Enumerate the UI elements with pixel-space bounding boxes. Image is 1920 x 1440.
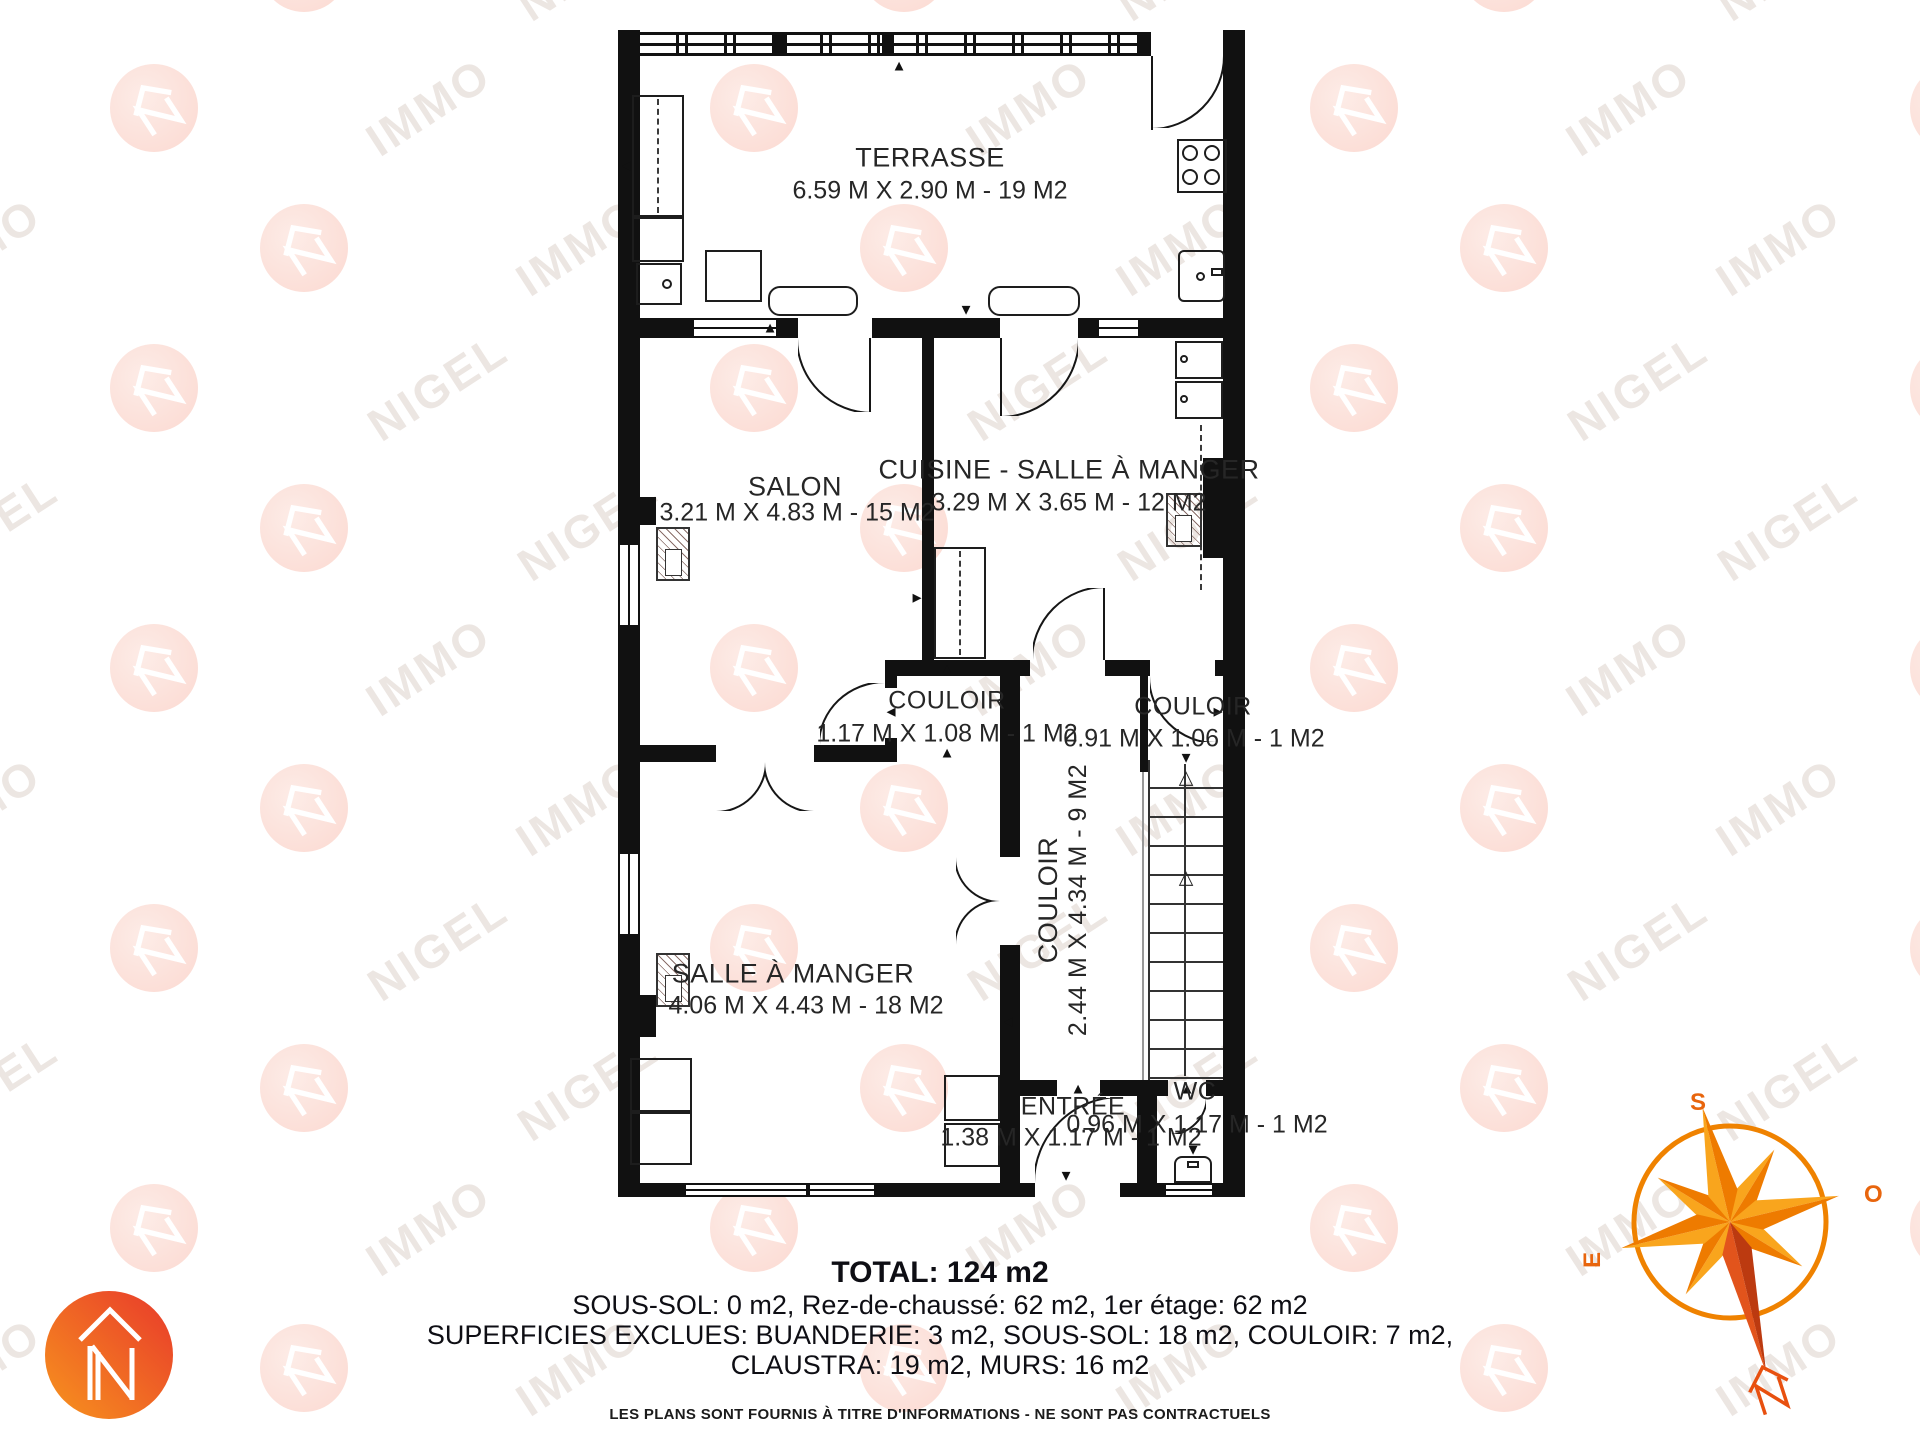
- cabinet-knob: [1180, 395, 1188, 403]
- door-leaf: [1103, 588, 1105, 660]
- wall: [1000, 945, 1020, 1195]
- wardrobe: [630, 1112, 692, 1165]
- opening-marker: ▼: [959, 303, 974, 318]
- compass-south-label: S: [1690, 1089, 1706, 1116]
- wall: [1223, 30, 1245, 1197]
- wall: [1120, 1183, 1164, 1197]
- wall: [1105, 660, 1150, 676]
- room-dims-cuisine: 3.29 M X 3.65 M - 12 M2: [931, 489, 1206, 518]
- double-door-arc: [765, 762, 814, 811]
- door-leaf: [1000, 338, 1002, 416]
- window: [618, 852, 640, 936]
- disclaimer: LES PLANS SONT FOURNIS À TITRE D'INFORMA…: [420, 1406, 1460, 1423]
- wall: [1078, 318, 1097, 338]
- door-arc: [798, 338, 872, 412]
- burner: [1182, 169, 1198, 185]
- wall: [1214, 1183, 1245, 1197]
- burner: [1204, 145, 1220, 161]
- room-label-salle-a-manger: SALLE À MANGER: [672, 959, 915, 990]
- wall-pier: [640, 995, 656, 1037]
- radiator-inner: [1175, 515, 1192, 542]
- window: [808, 1183, 876, 1197]
- compass-east-label: E: [1580, 1252, 1606, 1268]
- door-leaf: [1151, 56, 1153, 130]
- nigel-immo-logo-icon: [36, 1282, 186, 1432]
- door-arc: [1033, 588, 1105, 660]
- burner: [1182, 145, 1198, 161]
- wall: [1137, 32, 1151, 56]
- wall: [618, 1183, 684, 1197]
- radiator: [656, 527, 690, 581]
- bench: [768, 286, 858, 316]
- double-door-arc: [956, 901, 1000, 945]
- room-label-couloir-2: COULOIR: [1134, 693, 1251, 722]
- closet-dash-line: [959, 551, 961, 655]
- wall: [876, 1183, 1035, 1197]
- window: [1164, 1183, 1214, 1197]
- room-dims-salon: 3.21 M X 4.83 M - 15 M2: [659, 499, 934, 528]
- double-door-arc: [956, 857, 1000, 901]
- cabinet-knob: [1180, 355, 1188, 363]
- door-arc: [1151, 56, 1223, 128]
- door-arc: [1000, 338, 1078, 416]
- burner: [1204, 169, 1220, 185]
- area-summary: TOTAL: 124 m2 SOUS-SOL: 0 m2, Rez-de-cha…: [420, 1256, 1460, 1423]
- wall: [618, 318, 692, 338]
- opening-marker: ▲: [892, 59, 907, 74]
- floors-area-line: SOUS-SOL: 0 m2, Rez-de-chaussé: 62 m2, 1…: [420, 1290, 1460, 1320]
- wall: [1215, 660, 1245, 676]
- stair-up-arrow: △: [1179, 769, 1194, 788]
- wall: [882, 32, 894, 56]
- room-label-cuisine: CUISINE - SALLE À MANGER: [878, 455, 1259, 486]
- sink-tap: [1211, 268, 1223, 276]
- room-dims-couloir-3: 2.44 M X 4.34 M - 9 M2: [1064, 764, 1093, 1036]
- room-label-terrasse: TERRASSE: [855, 143, 1005, 174]
- bench: [988, 286, 1080, 316]
- wall-pier: [640, 497, 656, 525]
- room-dims-terrasse: 6.59 M X 2.90 M - 19 M2: [792, 177, 1067, 206]
- washing-machine: [636, 263, 682, 305]
- stair-stringer: [1142, 772, 1144, 1080]
- room-label-wc: WC: [1174, 1078, 1217, 1107]
- opening-marker: ▼: [1059, 1169, 1074, 1184]
- shelf: [944, 1075, 1000, 1121]
- wall: [618, 745, 716, 762]
- opening-marker: ▲: [940, 662, 955, 677]
- double-door-arc: [716, 762, 765, 811]
- opening-marker: ◄: [619, 159, 634, 174]
- room-dims-couloir-1: 1.17 M X 1.08 M - 1 M2: [816, 720, 1077, 749]
- stair-center-line: [1184, 764, 1186, 1076]
- window: [1097, 318, 1140, 338]
- floor-plan-page: NIGELNIGELNIGELNIGELIMMOIMMOIMMOIMMOIMMO…: [0, 0, 1920, 1440]
- radiator-inner: [665, 549, 682, 576]
- wall: [1140, 318, 1245, 338]
- opening-marker: ▲: [763, 321, 778, 336]
- wall: [775, 32, 787, 56]
- cabinet: [632, 217, 684, 262]
- stair-up-arrow: △: [1179, 869, 1194, 888]
- window: [618, 543, 640, 627]
- wall: [872, 318, 1000, 338]
- opening-marker: ►: [910, 591, 925, 606]
- room-label-couloir-3-name: COULOIR: [1033, 764, 1064, 1036]
- door-leaf: [869, 338, 871, 412]
- opening-marker: ◄: [1001, 1015, 1016, 1030]
- wall: [778, 318, 798, 338]
- compass-north-glyph: [1744, 1361, 1796, 1417]
- room-label-couloir-3: COULOIR 2.44 M X 4.34 M - 9 M2: [1033, 764, 1093, 1036]
- toilet-flush: [1187, 1161, 1199, 1168]
- room-dims-wc: 0.96 M X 1.17 M - 1 M2: [1066, 1111, 1327, 1140]
- appliance: [705, 250, 762, 302]
- excluded-area-line2: CLAUSTRA: 19 m2, MURS: 16 m2: [420, 1350, 1460, 1380]
- room-label-couloir-1: COULOIR: [888, 687, 1005, 716]
- excluded-area-line: SUPERFICIES EXCLUES: BUANDERIE: 3 m2, SO…: [420, 1320, 1460, 1350]
- sink-drain: [1196, 272, 1205, 281]
- washer-knob: [662, 279, 672, 289]
- compass-west-label: O: [1864, 1181, 1883, 1208]
- closet-dash-line: [657, 99, 659, 213]
- total-area: TOTAL: 124 m2: [420, 1256, 1460, 1290]
- compass-rose-icon: S O E: [1580, 1072, 1900, 1432]
- wardrobe: [630, 1058, 692, 1112]
- room-dims-salle-a-manger: 4.06 M X 4.43 M - 18 M2: [668, 992, 943, 1021]
- window: [684, 1183, 808, 1197]
- room-dims-couloir-2: 0.91 M X 1.06 M - 1 M2: [1063, 725, 1324, 754]
